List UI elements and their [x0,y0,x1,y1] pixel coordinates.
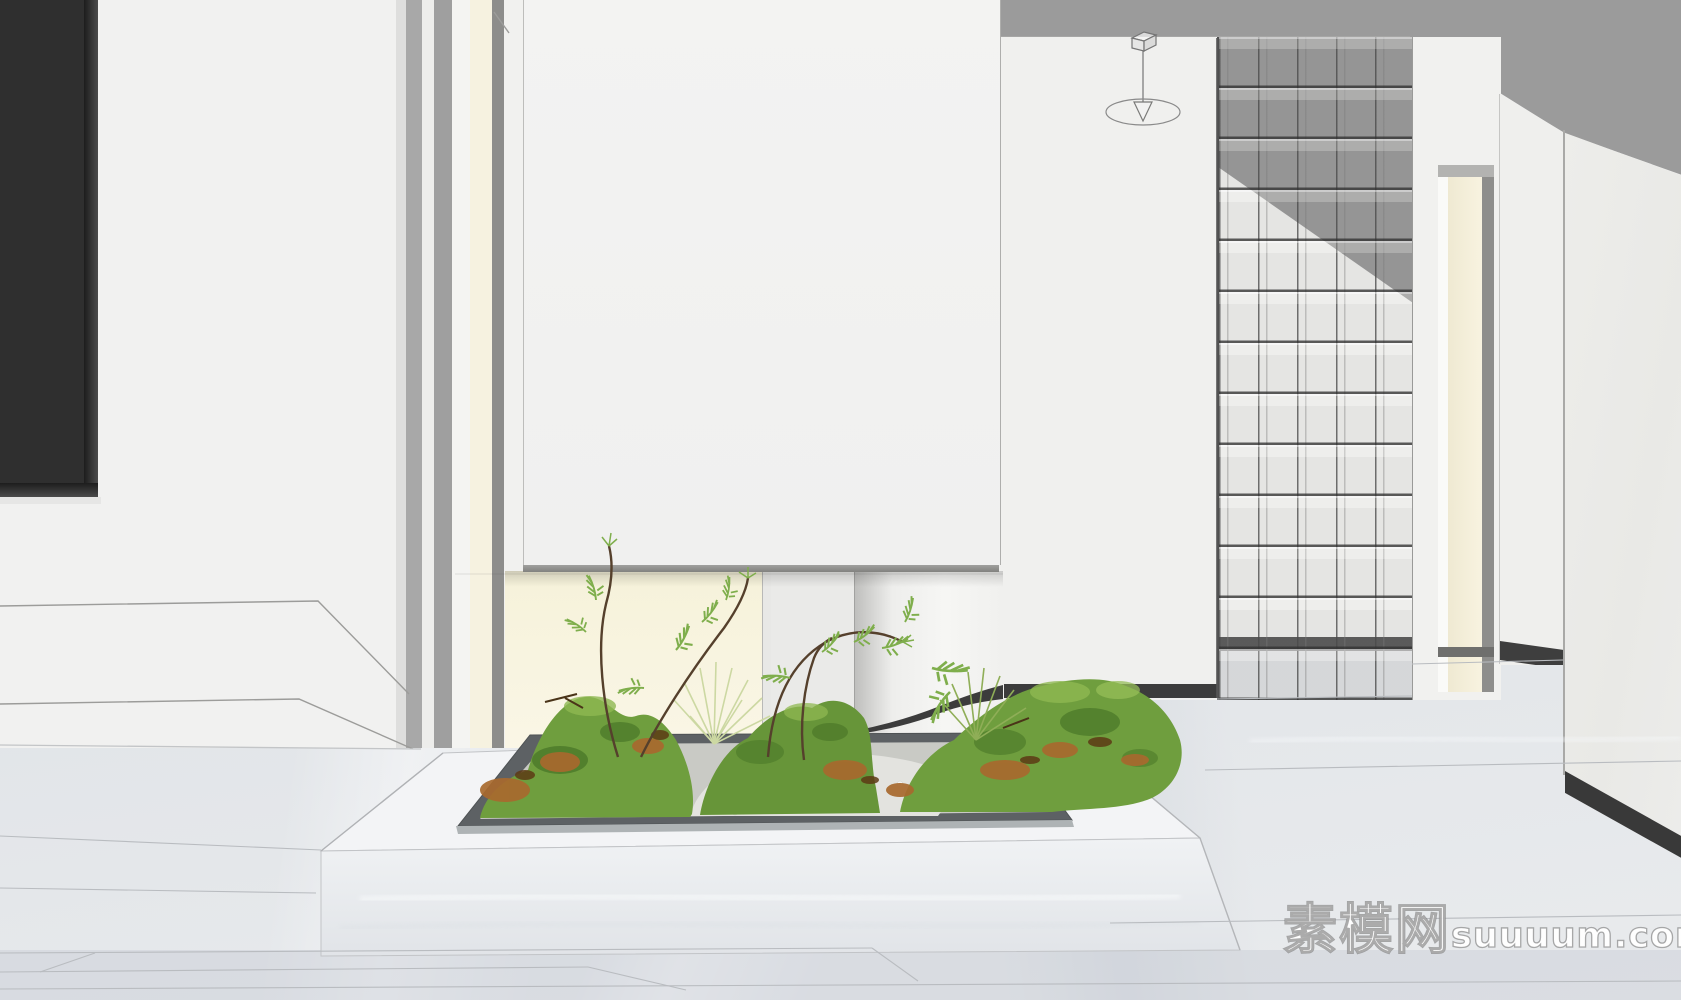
watermark: 素模网suuuum.com [1283,903,1681,957]
watermark-site-name: 素模网 [1283,903,1451,957]
watermark-domain: suuuum.com [1451,916,1681,957]
sunken-moss-planter [456,662,1182,834]
scene-linework-and-planter [0,0,1681,1000]
wall-molding-lines [0,12,509,749]
interior-render-scene: 素模网suuuum.com [0,0,1681,1000]
pendant-lamp [1106,32,1180,125]
